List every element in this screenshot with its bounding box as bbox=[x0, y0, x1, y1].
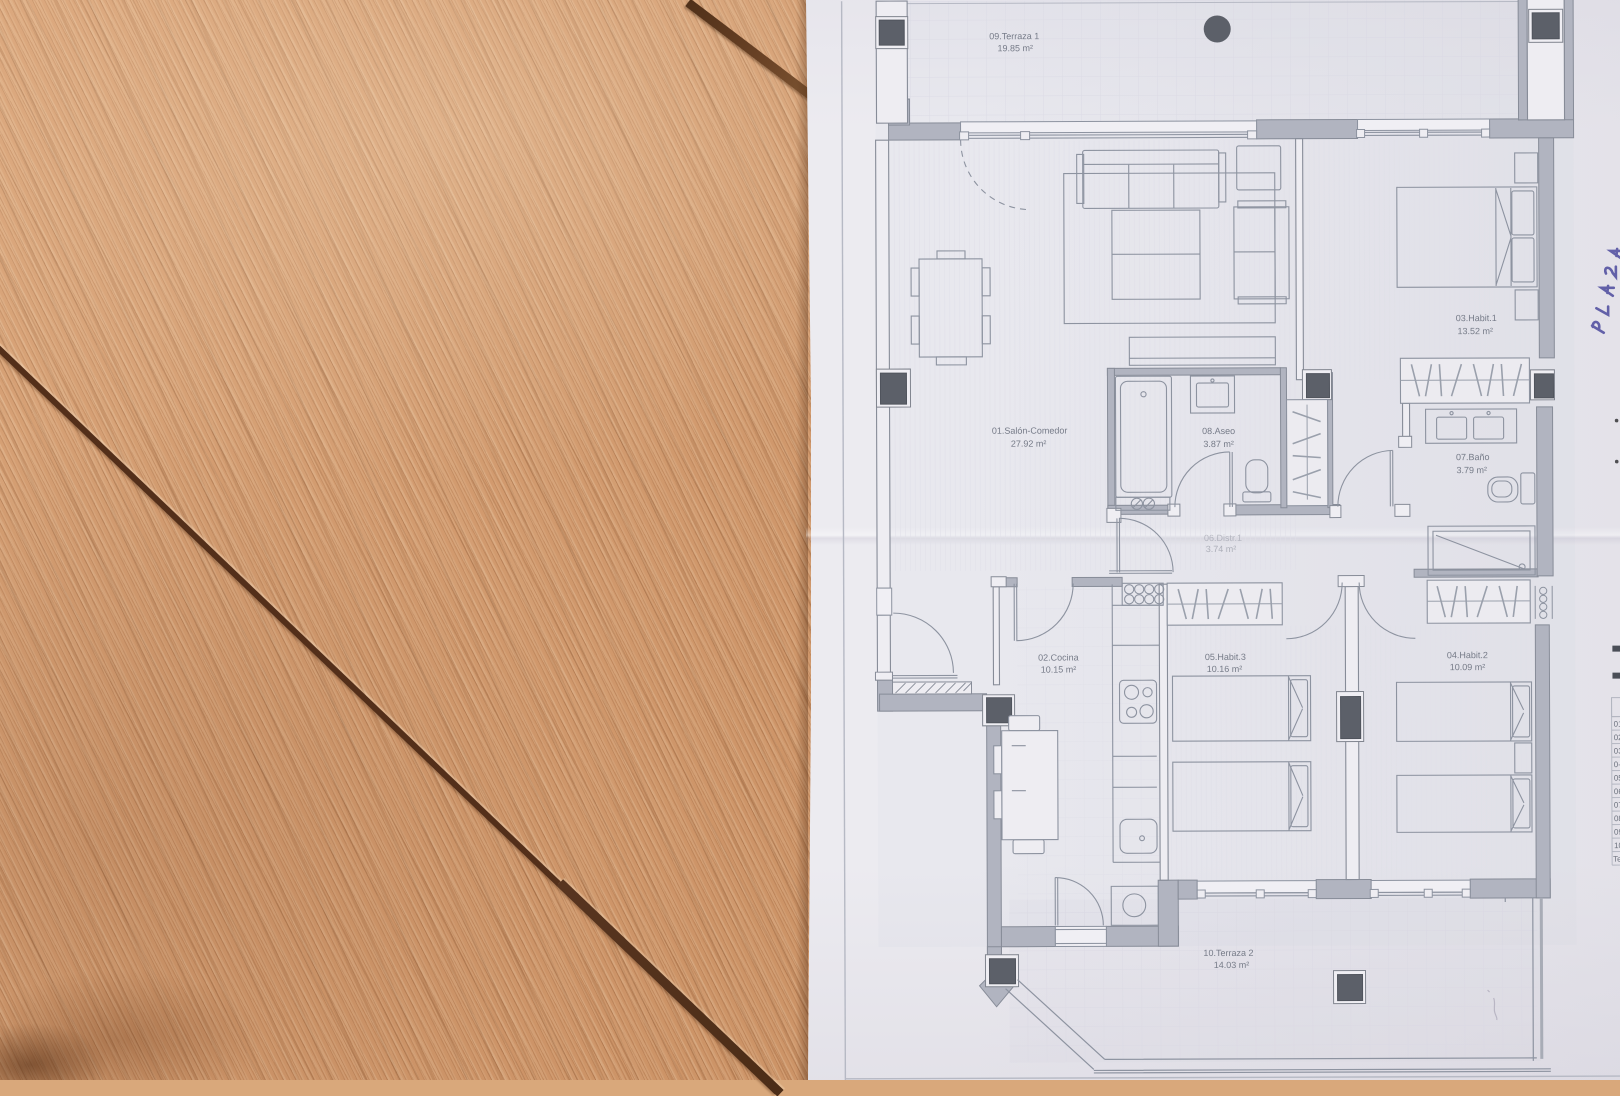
svg-text:08: 08 bbox=[1614, 814, 1620, 823]
svg-text:04.Habit.2: 04.Habit.2 bbox=[1447, 650, 1488, 660]
svg-text:10.15 m²: 10.15 m² bbox=[1041, 664, 1077, 674]
svg-text:27.92 m²: 27.92 m² bbox=[1011, 439, 1047, 449]
svg-text:07.Baño: 07.Baño bbox=[1456, 452, 1490, 462]
svg-text:13.52 m²: 13.52 m² bbox=[1457, 326, 1493, 336]
svg-text:01.Salón-Comedor: 01.Salón-Comedor bbox=[992, 426, 1068, 436]
svg-text:10.16 m²: 10.16 m² bbox=[1207, 664, 1243, 674]
svg-text:01: 01 bbox=[1614, 720, 1620, 729]
svg-text:08.Aseo: 08.Aseo bbox=[1202, 426, 1235, 436]
svg-text:05.Habit.3: 05.Habit.3 bbox=[1205, 652, 1246, 662]
svg-text:10.09 m²: 10.09 m² bbox=[1450, 662, 1486, 672]
svg-text:10.Terraza 2: 10.Terraza 2 bbox=[1203, 948, 1253, 958]
svg-text:09: 09 bbox=[1614, 828, 1620, 837]
svg-text:0-: 0- bbox=[1614, 760, 1620, 769]
svg-text:02: 02 bbox=[1614, 733, 1620, 742]
svg-text:03: 03 bbox=[1614, 747, 1620, 756]
svg-text:02.Cocina: 02.Cocina bbox=[1038, 652, 1079, 662]
svg-text:10: 10 bbox=[1614, 841, 1620, 850]
svg-text:06.Distr.1: 06.Distr.1 bbox=[1204, 533, 1242, 543]
svg-text:3.74 m²: 3.74 m² bbox=[1206, 544, 1237, 554]
svg-text:Te: Te bbox=[1613, 855, 1620, 864]
svg-text:03.Habit.1: 03.Habit.1 bbox=[1456, 313, 1497, 323]
svg-text:06: 06 bbox=[1614, 787, 1620, 796]
svg-text:07: 07 bbox=[1614, 801, 1620, 810]
svg-text:14.03 m²: 14.03 m² bbox=[1214, 960, 1250, 970]
svg-text:19.85 m²: 19.85 m² bbox=[997, 43, 1033, 53]
svg-text:3.79 m²: 3.79 m² bbox=[1456, 465, 1487, 475]
svg-text:09.Terraza 1: 09.Terraza 1 bbox=[989, 31, 1039, 41]
svg-text:3.87 m²: 3.87 m² bbox=[1203, 439, 1234, 449]
svg-text:05: 05 bbox=[1614, 774, 1620, 783]
